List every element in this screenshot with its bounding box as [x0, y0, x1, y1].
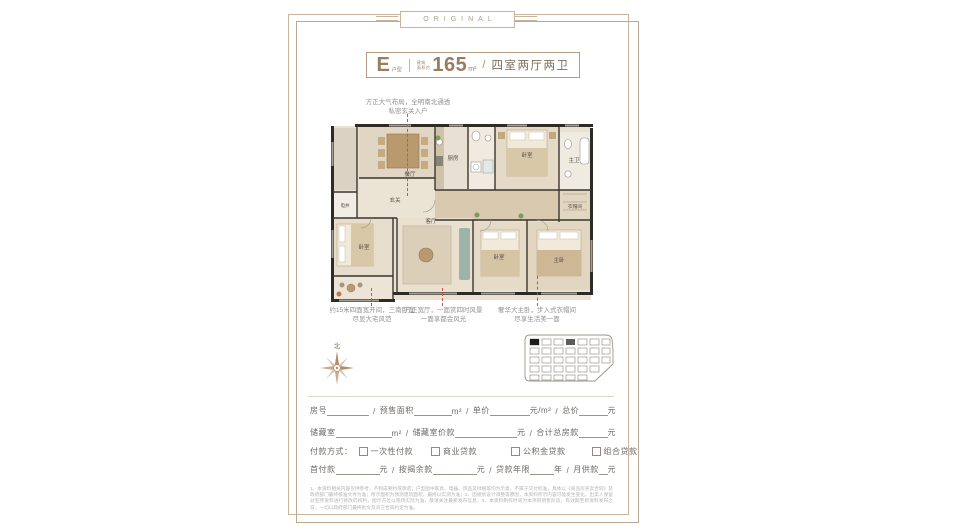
blank-monthly-payment[interactable]	[599, 465, 608, 475]
guide-line-bottom-2	[442, 288, 443, 306]
checkbox-icon[interactable]	[511, 447, 520, 456]
annotation-top-line2: 私密玄关入户	[333, 107, 483, 116]
area-label: 建筑 面积约	[417, 60, 431, 70]
checkbox-option-lump-sum[interactable]: 一次性付款	[359, 446, 414, 457]
label-shaft: 电井	[341, 202, 350, 209]
washer	[471, 162, 481, 172]
blank-grand-total[interactable]	[579, 428, 608, 438]
unit-yuan: 元	[608, 427, 617, 438]
unit-type-suffix: 户型	[392, 66, 402, 73]
label-bedroom-west: 卧室	[358, 243, 370, 251]
blank-storage-price[interactable]	[455, 428, 517, 438]
blank-storage[interactable]	[336, 428, 392, 438]
blank-total-price[interactable]	[579, 406, 607, 416]
separator: /	[530, 429, 533, 438]
checkbox-icon[interactable]	[359, 447, 368, 456]
toilet	[472, 131, 480, 141]
field-label-grand-total: 合计总房款	[536, 427, 579, 438]
annotation-b3-line2: 尽享生活美一面	[487, 315, 587, 324]
stove	[436, 156, 443, 166]
label-kitchen: 厨房	[447, 154, 459, 162]
blank-room-no[interactable]	[327, 406, 369, 416]
form-row-3: 付款方式： 一次性付款 商业贷款 公积金贷款 组合贷款	[310, 446, 616, 457]
blank-mortgage-balance[interactable]	[433, 465, 477, 475]
unit-type-letter: E	[377, 55, 390, 75]
label-bedroom-south: 卧室	[493, 253, 505, 261]
field-label-mortgage-balance: 按揭余款	[399, 464, 433, 475]
area-value: 165	[432, 54, 467, 77]
label-master-bath: 主卫	[568, 156, 580, 164]
label-bedroom-north: 卧室	[521, 151, 533, 159]
unit-yuan-per-sqm: 元/m²	[530, 405, 552, 416]
blank-presale-area[interactable]	[414, 406, 452, 416]
checkbox-option-commercial-loan[interactable]: 商业贷款	[431, 446, 477, 457]
label-entry: 玄关	[389, 196, 401, 204]
corridor	[435, 190, 559, 220]
unit-yuan: 元	[608, 464, 617, 475]
field-label-storage-price: 储藏室价款	[413, 427, 456, 438]
field-label-monthly-payment: 月供款	[573, 464, 599, 475]
title-divider	[409, 59, 410, 72]
annotation-bottom-2: 方正宽厅，一面赏四时风景 一面享都会风光	[399, 306, 488, 324]
blank-loan-term[interactable]	[530, 465, 554, 475]
annotation-top-line1: 方正大气布局，全明南北通透	[333, 98, 483, 107]
field-label-down-payment: 首付款	[310, 464, 336, 475]
floor-plan: 餐厅 玄关 电井 厨房 卧室 主卫 衣帽间 客厅 卧室 卧室 主卧	[331, 122, 593, 302]
checkbox-label: 公积金贷款	[523, 446, 566, 457]
shower	[483, 160, 493, 173]
label-master-bedroom: 主卧	[553, 256, 565, 264]
unit-year: 年	[554, 464, 563, 475]
title-slash: /	[482, 59, 485, 71]
separator: /	[489, 466, 492, 475]
field-label-total-price: 总价	[562, 405, 579, 416]
checkbox-label: 一次性付款	[371, 446, 414, 457]
plant	[436, 136, 441, 141]
compass: 北	[317, 338, 357, 388]
blank-unit-price[interactable]	[490, 406, 530, 416]
balcony-table	[347, 284, 355, 292]
form-divider	[308, 396, 614, 397]
coffee-table	[419, 248, 433, 262]
checkbox-option-combined-loan[interactable]: 组合贷款	[592, 446, 638, 457]
field-label-unit-price: 单价	[473, 405, 490, 416]
unit-title: E 户型 建筑 面积约 165 m² / 四室两厅两卫	[366, 52, 580, 78]
compass-north-label: 北	[334, 342, 341, 350]
area-label-line2: 面积约	[417, 65, 431, 70]
form-row-4: 首付款 元 / 按揭余款 元 / 贷款年限 年 / 月供款 元	[310, 464, 616, 475]
field-label-room-no: 房号	[310, 405, 327, 416]
annotation-b3-line1: 奢华大主卧，步入式衣帽间	[487, 306, 587, 315]
form-row-2: 储藏室 m² / 储藏室价款 元 / 合计总房款 元	[310, 427, 616, 438]
field-label-loan-term: 贷款年限	[496, 464, 530, 475]
original-badge-text: ORIGINAL	[418, 16, 496, 23]
plant-pot	[337, 292, 342, 297]
room-balcony-left	[333, 128, 357, 190]
dining-table	[387, 134, 419, 168]
bathtub	[580, 138, 589, 164]
unit-yuan: 元	[477, 464, 486, 475]
sofa	[459, 228, 470, 280]
separator: /	[566, 466, 569, 475]
separator: /	[406, 429, 409, 438]
site-map	[523, 334, 615, 384]
badge-right-rule	[515, 16, 537, 21]
unit-sqm: m²	[452, 407, 462, 416]
field-label-payment-method: 付款方式：	[310, 446, 353, 457]
layout-text: 四室两厅两卫	[491, 57, 569, 73]
room-balcony-south	[333, 276, 393, 300]
unit-yuan: 元	[380, 464, 389, 475]
area-unit: m²	[468, 66, 476, 73]
compass-rose	[320, 351, 354, 385]
guide-line-bottom-3	[537, 276, 538, 306]
checkbox-label: 商业贷款	[443, 446, 477, 457]
checkbox-icon[interactable]	[431, 447, 440, 456]
separator: /	[555, 407, 558, 416]
checkbox-icon[interactable]	[592, 447, 601, 456]
site-map-highlight-unit	[530, 339, 539, 345]
unit-yuan: 元	[608, 405, 617, 416]
annotation-top: 方正大气布局，全明南北通透 私密玄关入户	[333, 98, 483, 116]
form-row-1: 房号 / 预售面积 m² / 单价 元/m² / 总价 元	[310, 405, 616, 416]
guide-line-bottom-1	[371, 288, 372, 306]
unit-sqm: m²	[392, 429, 402, 438]
original-badge: ORIGINAL	[400, 11, 515, 28]
checkbox-option-provident-fund-loan[interactable]: 公积金贷款	[511, 446, 566, 457]
checkbox-label: 组合贷款	[604, 446, 638, 457]
separator: /	[392, 466, 395, 475]
field-label-presale-area: 预售面积	[380, 405, 414, 416]
disclaimer-text: 1、本资料相关内容仅供参考，不构成要约或承诺；户型图中家具、电器、饰品及绿植等均…	[310, 486, 613, 511]
separator: /	[373, 407, 376, 416]
separator: /	[466, 407, 469, 416]
annotation-bottom-3: 奢华大主卧，步入式衣帽间 尽享生活美一面	[487, 306, 587, 324]
annotation-b2-line1: 方正宽厅，一面赏四时风景	[399, 306, 488, 315]
label-living: 客厅	[425, 217, 437, 225]
badge-left-rule	[376, 16, 398, 21]
unit-yuan: 元	[517, 427, 526, 438]
page-canvas: ORIGINAL E 户型 建筑 面积约 165 m² / 四室两厅两卫 方正大…	[0, 0, 960, 530]
label-closet: 衣帽间	[568, 203, 583, 210]
blank-down-payment[interactable]	[336, 465, 380, 475]
annotation-b2-line2: 一面享都会风光	[399, 315, 488, 324]
guide-line-top	[407, 114, 408, 196]
field-label-storage: 储藏室	[310, 427, 336, 438]
